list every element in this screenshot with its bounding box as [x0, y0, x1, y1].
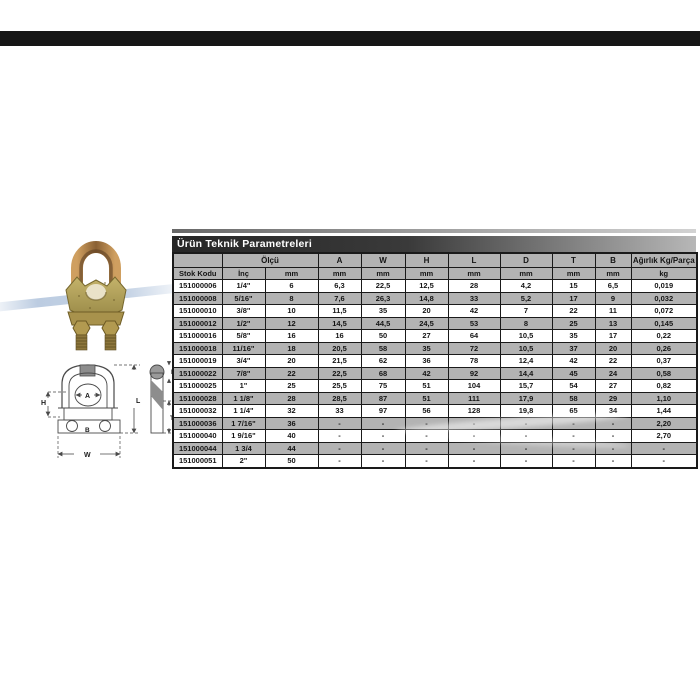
value-cell: 11/16"	[222, 342, 265, 355]
value-cell: 2,70	[631, 430, 697, 443]
value-cell: 36	[405, 355, 448, 368]
value-cell: 54	[552, 380, 595, 393]
mm-header: mm	[318, 268, 361, 280]
value-cell: -	[631, 442, 697, 455]
value-cell: 10,5	[500, 330, 552, 343]
value-cell: 0,82	[631, 380, 697, 393]
value-cell: -	[631, 455, 697, 468]
value-cell: 37	[552, 342, 595, 355]
value-cell: 1,44	[631, 405, 697, 418]
value-cell: 22,5	[318, 367, 361, 380]
value-cell: 20	[595, 342, 631, 355]
value-cell: 17,9	[500, 392, 552, 405]
value-cell: 58	[552, 392, 595, 405]
col-header-W: W	[361, 253, 405, 268]
value-cell: -	[595, 455, 631, 468]
value-cell: 40	[265, 430, 318, 443]
stok-kodu-cell: 151000028	[173, 392, 222, 405]
value-cell: 1 7/16"	[222, 417, 265, 430]
value-cell: -	[318, 430, 361, 443]
dim-label-H: H	[41, 400, 46, 407]
value-cell: 25,5	[318, 380, 361, 393]
value-cell: -	[595, 430, 631, 443]
value-cell: 27	[405, 330, 448, 343]
value-cell: 18	[265, 342, 318, 355]
value-cell: -	[500, 417, 552, 430]
value-cell: 87	[361, 392, 405, 405]
value-cell: 0,37	[631, 355, 697, 368]
value-cell: -	[448, 455, 500, 468]
value-cell: 27	[595, 380, 631, 393]
value-cell: 20	[265, 355, 318, 368]
col-header-B: B	[595, 253, 631, 268]
header-row-groups: Ölçü A W H L D T B Ağırlık Kg/Parça	[173, 253, 697, 268]
spec-table: Ölçü A W H L D T B Ağırlık Kg/Parça Stok…	[172, 252, 698, 469]
table-row: 1510000441 3/444--------	[173, 442, 697, 455]
value-cell: 25	[265, 380, 318, 393]
value-cell: 8	[500, 317, 552, 330]
stok-kodu-cell: 151000022	[173, 367, 222, 380]
table-body: 1510000061/4"66,322,512,5284,2156,50,019…	[173, 280, 697, 468]
value-cell: -	[500, 430, 552, 443]
value-cell: -	[552, 442, 595, 455]
value-cell: 0,22	[631, 330, 697, 343]
stok-kodu-cell: 151000036	[173, 417, 222, 430]
value-cell: 34	[595, 405, 631, 418]
value-cell: 0,032	[631, 292, 697, 305]
value-cell: 1 3/4	[222, 442, 265, 455]
value-cell: 33	[448, 292, 500, 305]
catalog-page: A H B L W D T Ürün Teknik Parametreleri …	[0, 0, 700, 700]
value-cell: -	[448, 417, 500, 430]
value-cell: 4,2	[500, 280, 552, 293]
spec-table-section: Ürün Teknik Parametreleri Ölçü A W H L D…	[172, 229, 696, 469]
value-cell: 97	[361, 405, 405, 418]
table-row: 1510000401 9/16"40-------2,70	[173, 430, 697, 443]
value-cell: -	[595, 442, 631, 455]
value-cell: 1 1/4"	[222, 405, 265, 418]
table-row: 1510000361 7/16"36-------2,20	[173, 417, 697, 430]
value-cell: 12	[265, 317, 318, 330]
table-row: 1510000121/2"1214,544,524,553825130,145	[173, 317, 697, 330]
value-cell: 35	[361, 305, 405, 318]
stok-kodu-cell: 151000012	[173, 317, 222, 330]
olcu-group-header: Ölçü	[222, 253, 318, 268]
mm-header: mm	[552, 268, 595, 280]
value-cell: 1"	[222, 380, 265, 393]
value-cell: -	[318, 455, 361, 468]
stok-kodu-cell: 151000016	[173, 330, 222, 343]
wire-rope-clip-photo	[46, 226, 146, 352]
value-cell: 0,26	[631, 342, 697, 355]
value-cell: -	[500, 455, 552, 468]
value-cell: 17	[595, 330, 631, 343]
table-row: 1510000061/4"66,322,512,5284,2156,50,019	[173, 280, 697, 293]
table-row: 1510000281 1/8"2828,5875111117,958291,10	[173, 392, 697, 405]
value-cell: 24	[595, 367, 631, 380]
value-cell: -	[552, 417, 595, 430]
value-cell: 51	[405, 380, 448, 393]
value-cell: 29	[595, 392, 631, 405]
value-cell: 128	[448, 405, 500, 418]
table-row: 1510000165/8"161650276410,535170,22	[173, 330, 697, 343]
value-cell: 58	[361, 342, 405, 355]
value-cell: 12,5	[405, 280, 448, 293]
value-cell: 32	[265, 405, 318, 418]
value-cell: 36	[265, 417, 318, 430]
value-cell: 6	[265, 280, 318, 293]
value-cell: 11,5	[318, 305, 361, 318]
value-cell: 62	[361, 355, 405, 368]
value-cell: -	[361, 455, 405, 468]
value-cell: 50	[265, 455, 318, 468]
value-cell: 50	[361, 330, 405, 343]
value-cell: 5/8"	[222, 330, 265, 343]
value-cell: 28,5	[318, 392, 361, 405]
value-cell: 35	[405, 342, 448, 355]
value-cell: 28	[448, 280, 500, 293]
value-cell: 26,3	[361, 292, 405, 305]
value-cell: 35	[552, 330, 595, 343]
value-cell: 75	[361, 380, 405, 393]
value-cell: 28	[265, 392, 318, 405]
value-cell: 16	[265, 330, 318, 343]
value-cell: 22	[595, 355, 631, 368]
value-cell: 11	[595, 305, 631, 318]
table-row: 1510000251"2525,5755110415,754270,82	[173, 380, 697, 393]
value-cell: 33	[318, 405, 361, 418]
value-cell: 104	[448, 380, 500, 393]
stok-kodu-cell: 151000008	[173, 292, 222, 305]
value-cell: 9	[595, 292, 631, 305]
value-cell: -	[500, 442, 552, 455]
value-cell: 20	[405, 305, 448, 318]
value-cell: 22	[552, 305, 595, 318]
value-cell: 17	[552, 292, 595, 305]
value-cell: -	[405, 430, 448, 443]
col-header-D: D	[500, 253, 552, 268]
value-cell: 16	[318, 330, 361, 343]
value-cell: 21,5	[318, 355, 361, 368]
value-cell: -	[318, 417, 361, 430]
table-row: 1510000321 1/4"3233975612819,865341,44	[173, 405, 697, 418]
col-header-H: H	[405, 253, 448, 268]
mm-header: mm	[595, 268, 631, 280]
value-cell: 3/8"	[222, 305, 265, 318]
value-cell: -	[361, 417, 405, 430]
kg-header: kg	[631, 268, 697, 280]
value-cell: 0,58	[631, 367, 697, 380]
mm-header: mm	[265, 268, 318, 280]
blank-header-cell	[173, 253, 222, 268]
value-cell: 53	[448, 317, 500, 330]
table-title: Ürün Teknik Parametreleri	[172, 236, 696, 252]
value-cell: 42	[405, 367, 448, 380]
value-cell: 78	[448, 355, 500, 368]
table-row: 1510000512"50--------	[173, 455, 697, 468]
value-cell: -	[318, 442, 361, 455]
col-header-L: L	[448, 253, 500, 268]
value-cell: 42	[552, 355, 595, 368]
value-cell: 5,2	[500, 292, 552, 305]
value-cell: 14,4	[500, 367, 552, 380]
value-cell: 6,5	[595, 280, 631, 293]
stok-kodu-cell: 151000044	[173, 442, 222, 455]
stok-kodu-header: Stok Kodu	[173, 268, 222, 280]
value-cell: 1,10	[631, 392, 697, 405]
table-row: 1510000085/16"87,626,314,8335,21790,032	[173, 292, 697, 305]
mm-header: mm	[361, 268, 405, 280]
value-cell: 2"	[222, 455, 265, 468]
value-cell: 51	[405, 392, 448, 405]
col-header-weight: Ağırlık Kg/Parça	[631, 253, 697, 268]
stok-kodu-cell: 151000040	[173, 430, 222, 443]
value-cell: 0,019	[631, 280, 697, 293]
value-cell: 56	[405, 405, 448, 418]
value-cell: 7,6	[318, 292, 361, 305]
stok-kodu-cell: 151000051	[173, 455, 222, 468]
col-header-A: A	[318, 253, 361, 268]
value-cell: 3/4"	[222, 355, 265, 368]
value-cell: 13	[595, 317, 631, 330]
stok-kodu-cell: 151000019	[173, 355, 222, 368]
value-cell: 1/2"	[222, 317, 265, 330]
dim-label-A: A	[85, 393, 90, 400]
value-cell: -	[448, 442, 500, 455]
header-row-units: Stok Kodu İnç mm mm mm mm mm mm mm mm kg	[173, 268, 697, 280]
value-cell: 25	[552, 317, 595, 330]
mm-header: mm	[405, 268, 448, 280]
value-cell: -	[405, 442, 448, 455]
value-cell: 44,5	[361, 317, 405, 330]
stok-kodu-cell: 151000032	[173, 405, 222, 418]
value-cell: 64	[448, 330, 500, 343]
value-cell: -	[405, 455, 448, 468]
value-cell: 0,072	[631, 305, 697, 318]
value-cell: 45	[552, 367, 595, 380]
value-cell: 1 9/16"	[222, 430, 265, 443]
value-cell: 72	[448, 342, 500, 355]
value-cell: 10,5	[500, 342, 552, 355]
value-cell: 7/8"	[222, 367, 265, 380]
value-cell: 14,8	[405, 292, 448, 305]
dim-label-B: B	[85, 427, 90, 434]
value-cell: -	[361, 430, 405, 443]
stok-kodu-cell: 151000025	[173, 380, 222, 393]
value-cell: 22	[265, 367, 318, 380]
value-cell: 10	[265, 305, 318, 318]
value-cell: 8	[265, 292, 318, 305]
saddle-casting	[66, 277, 126, 317]
value-cell: 0,145	[631, 317, 697, 330]
value-cell: 42	[448, 305, 500, 318]
value-cell: 15,7	[500, 380, 552, 393]
table-top-accent-line	[172, 229, 696, 233]
top-black-bar	[0, 31, 700, 46]
dim-label-L: L	[136, 398, 141, 405]
value-cell: 68	[361, 367, 405, 380]
table-row: 1510000103/8"1011,5352042722110,072	[173, 305, 697, 318]
base-and-nuts	[68, 312, 124, 350]
stok-kodu-cell: 151000006	[173, 280, 222, 293]
value-cell: -	[595, 417, 631, 430]
table-row: 1510000193/4"2021,562367812,442220,37	[173, 355, 697, 368]
table-row: 15100001811/16"1820,558357210,537200,26	[173, 342, 697, 355]
value-cell: -	[552, 430, 595, 443]
inc-header: İnç	[222, 268, 265, 280]
value-cell: 92	[448, 367, 500, 380]
value-cell: 5/16"	[222, 292, 265, 305]
value-cell: 111	[448, 392, 500, 405]
value-cell: -	[552, 455, 595, 468]
value-cell: 1 1/8"	[222, 392, 265, 405]
value-cell: 6,3	[318, 280, 361, 293]
value-cell: 14,5	[318, 317, 361, 330]
value-cell: 19,8	[500, 405, 552, 418]
value-cell: 12,4	[500, 355, 552, 368]
mm-header: mm	[448, 268, 500, 280]
value-cell: -	[405, 417, 448, 430]
value-cell: 20,5	[318, 342, 361, 355]
value-cell: 2,20	[631, 417, 697, 430]
dim-label-W: W	[84, 452, 91, 459]
value-cell: 24,5	[405, 317, 448, 330]
technical-drawing: A H B L W D T	[24, 356, 176, 466]
stok-kodu-cell: 151000010	[173, 305, 222, 318]
value-cell: -	[361, 442, 405, 455]
value-cell: 1/4"	[222, 280, 265, 293]
value-cell: 65	[552, 405, 595, 418]
value-cell: -	[448, 430, 500, 443]
value-cell: 44	[265, 442, 318, 455]
value-cell: 7	[500, 305, 552, 318]
value-cell: 22,5	[361, 280, 405, 293]
mm-header: mm	[500, 268, 552, 280]
stok-kodu-cell: 151000018	[173, 342, 222, 355]
value-cell: 15	[552, 280, 595, 293]
col-header-T: T	[552, 253, 595, 268]
table-row: 1510000227/8"2222,568429214,445240,58	[173, 367, 697, 380]
